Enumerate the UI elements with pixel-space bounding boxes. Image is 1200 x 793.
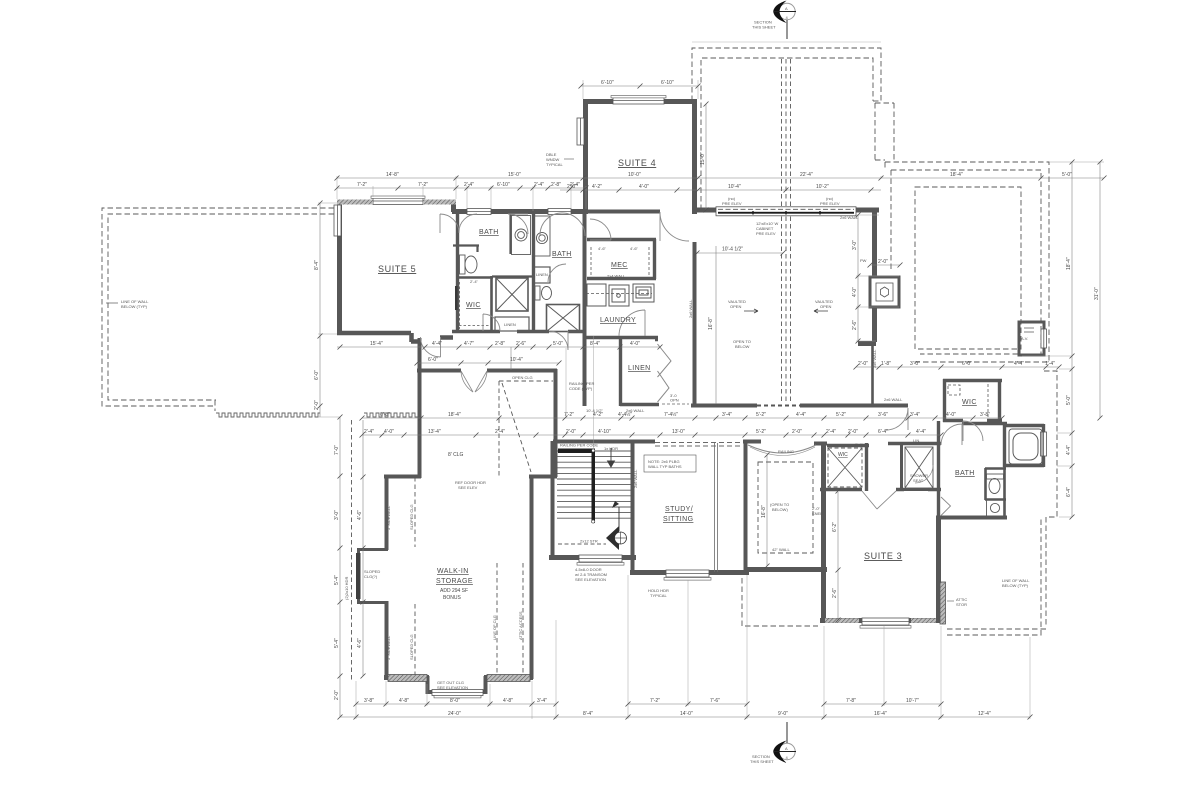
svg-text:SITTING: SITTING	[663, 516, 693, 523]
svg-text:24'-0": 24'-0"	[448, 711, 461, 717]
svg-text:2x6 WALL: 2x6 WALL	[688, 299, 693, 318]
svg-text:TYPICAL: TYPICAL	[650, 593, 667, 598]
svg-text:SUITE 5: SUITE 5	[378, 264, 416, 274]
svg-text:4'-4": 4'-4"	[916, 429, 926, 435]
svg-text:3'-0": 3'-0"	[334, 510, 340, 520]
svg-text:4'-8": 4'-8"	[399, 698, 409, 704]
svg-text:7'-0": 7'-0"	[334, 445, 340, 455]
svg-text:12'-4": 12'-4"	[978, 711, 991, 717]
svg-text:7'-4½": 7'-4½"	[664, 411, 678, 418]
svg-text:3'-8": 3'-8"	[364, 698, 374, 704]
svg-text:2'-0": 2'-0"	[858, 361, 868, 367]
svg-text:SEE ELEVATION: SEE ELEVATION	[575, 577, 606, 582]
svg-text:2'-4": 2'-4"	[464, 182, 474, 188]
svg-text:LINEN: LINEN	[628, 365, 651, 372]
svg-text:4'-6": 4'-6"	[598, 246, 607, 251]
svg-text:TYPICAL: TYPICAL	[546, 162, 563, 167]
svg-text:7'-2": 7'-2"	[357, 182, 367, 188]
svg-text:4'-10": 4'-10"	[598, 429, 611, 435]
svg-text:WIC: WIC	[466, 302, 481, 309]
svg-text:LAUNDRY: LAUNDRY	[600, 317, 636, 324]
svg-text:A.V.: A.V.	[1021, 336, 1028, 341]
svg-text:1'-8": 1'-8"	[881, 361, 891, 367]
svg-text:SEE ELEVATION: SEE ELEVATION	[437, 685, 468, 690]
svg-text:7'-8": 7'-8"	[846, 698, 856, 704]
svg-text:OPEN: OPEN	[730, 304, 741, 309]
svg-text:3'-8": 3'-8"	[980, 412, 990, 418]
svg-text:15'-4": 15'-4"	[370, 341, 383, 347]
svg-text:10'-7": 10'-7"	[906, 698, 919, 704]
svg-text:10'-4": 10'-4"	[728, 184, 741, 190]
svg-text:OPN: OPN	[670, 398, 679, 403]
svg-text:BATH: BATH	[955, 470, 975, 477]
svg-text:WALL TYP BATHS: WALL TYP BATHS	[648, 464, 682, 469]
svg-text:ATTIC ACCESS: ATTIC ACCESS	[518, 611, 523, 640]
svg-text:SLOPED CLG: SLOPED CLG	[409, 504, 414, 530]
svg-text:5' SIDEWALL: 5' SIDEWALL	[386, 635, 391, 660]
svg-text:5'-4": 5'-4"	[334, 638, 340, 648]
svg-text:RAILING: RAILING	[778, 449, 794, 454]
svg-text:15'-0": 15'-0"	[508, 172, 521, 178]
svg-text:BATH: BATH	[479, 229, 499, 236]
svg-text:4'-2": 4'-2"	[592, 184, 602, 190]
svg-text:4'-7": 4'-7"	[464, 341, 474, 347]
svg-text:5' SIDEWALL: 5' SIDEWALL	[386, 505, 391, 530]
svg-text:4'-0": 4'-0"	[384, 429, 394, 435]
svg-text:4'-8": 4'-8"	[503, 698, 513, 704]
svg-text:6'-8": 6'-8"	[380, 412, 390, 418]
svg-text:BATH: BATH	[552, 251, 572, 258]
svg-text:5'-2": 5'-2"	[756, 429, 766, 435]
svg-text:PRE ELEV: PRE ELEV	[756, 231, 776, 236]
svg-text:PRE ELEV: PRE ELEV	[820, 201, 840, 206]
svg-text:16'-4": 16'-4"	[874, 711, 887, 717]
svg-text:SEAT: SEAT	[913, 478, 924, 483]
svg-text:LIN.: LIN.	[913, 438, 920, 443]
svg-text:A: A	[785, 6, 788, 11]
svg-text:2x4 WALL: 2x4 WALL	[607, 274, 626, 279]
svg-text:3'-0": 3'-0"	[852, 240, 858, 250]
svg-text:7'-6": 7'-6"	[710, 698, 720, 704]
svg-text:LINE OF CLG: LINE OF CLG	[492, 615, 497, 640]
svg-text:SUITE 3: SUITE 3	[864, 551, 902, 561]
svg-text:16'-8": 16'-8"	[761, 505, 767, 518]
svg-text:5'-0": 5'-0"	[553, 341, 563, 347]
svg-text:BONUS: BONUS	[443, 595, 461, 601]
svg-text:2'-6": 2'-6"	[832, 588, 838, 598]
svg-text:5'-2": 5'-2"	[836, 412, 846, 418]
svg-text:PRE ELEV: PRE ELEV	[722, 201, 742, 206]
svg-text:2x6 WALL: 2x6 WALL	[872, 349, 877, 368]
svg-text:15'-0": 15'-0"	[700, 152, 706, 165]
svg-text:SEE ELEV: SEE ELEV	[458, 485, 478, 490]
svg-text:31'-0": 31'-0"	[1094, 287, 1100, 300]
svg-text:BELOW (TYP): BELOW (TYP)	[1002, 583, 1029, 588]
svg-text:BELOW: BELOW	[735, 344, 750, 349]
svg-text:14'-8": 14'-8"	[386, 172, 399, 178]
svg-text:4'-4": 4'-4"	[1066, 445, 1072, 455]
svg-text:THIS SHEET: THIS SHEET	[750, 759, 774, 764]
svg-text:6'-0": 6'-0"	[428, 357, 438, 363]
svg-text:2'-0": 2'-0"	[792, 429, 802, 435]
svg-text:2'-4": 2'-4"	[534, 182, 544, 188]
svg-text:9'-0": 9'-0"	[778, 711, 788, 717]
svg-text:3'-6": 3'-6"	[878, 412, 888, 418]
svg-text:4'-6": 4'-6"	[357, 638, 363, 648]
svg-text:8'-4": 8'-4"	[590, 341, 600, 347]
svg-text:2'-4": 2'-4"	[855, 442, 864, 447]
svg-text:BELOW): BELOW)	[772, 507, 788, 512]
svg-text:WALK-IN: WALK-IN	[437, 568, 469, 575]
svg-text:10'-4 1/2": 10'-4 1/2"	[586, 408, 603, 413]
svg-text:(2)2x10 HDR: (2)2x10 HDR	[344, 577, 349, 600]
svg-text:2'-0": 2'-0"	[566, 429, 576, 435]
svg-text:4'-0": 4'-0"	[630, 341, 640, 347]
svg-text:7'-2": 7'-2"	[650, 698, 660, 704]
svg-text:18'-4": 18'-4"	[448, 412, 461, 418]
svg-text:42" WALL: 42" WALL	[772, 547, 791, 552]
svg-text:10'-4": 10'-4"	[510, 357, 523, 363]
svg-text:2'-4": 2'-4"	[364, 429, 374, 435]
svg-text:PW: PW	[860, 258, 867, 263]
svg-text:2'-8": 2'-8"	[495, 341, 505, 347]
svg-text:8'-0": 8'-0"	[450, 698, 460, 704]
svg-text:4'-0": 4'-0"	[852, 287, 858, 297]
svg-text:2x6 WALL: 2x6 WALL	[884, 397, 903, 402]
svg-text:18'-4": 18'-4"	[950, 172, 963, 178]
svg-text:CLG(?): CLG(?)	[364, 574, 378, 579]
svg-text:10'-2": 10'-2"	[816, 184, 829, 190]
svg-text:4'-0": 4'-0"	[946, 412, 956, 418]
svg-text:SLOPED CLG: SLOPED CLG	[409, 634, 414, 660]
svg-text:13'-4": 13'-4"	[428, 429, 441, 435]
svg-text:2'-4": 2'-4"	[826, 429, 836, 435]
svg-text:8' CLG: 8' CLG	[448, 452, 464, 458]
svg-text:OPEN CLG: OPEN CLG	[512, 375, 533, 380]
svg-text:3'-4": 3'-4"	[537, 698, 547, 704]
svg-text:5'-2": 5'-2"	[756, 412, 766, 418]
svg-text:4'-4": 4'-4"	[432, 341, 442, 347]
svg-text:3'-4": 3'-4"	[910, 412, 920, 418]
svg-text:2'-0": 2'-0"	[567, 184, 577, 190]
svg-text:4'-4½": 4'-4½"	[618, 411, 632, 418]
svg-text:2'-0": 2'-0"	[878, 259, 888, 265]
svg-text:BELOW (TYP): BELOW (TYP)	[121, 304, 148, 309]
svg-text:1x HDR: 1x HDR	[604, 446, 618, 451]
svg-text:18'-4": 18'-4"	[1066, 257, 1072, 270]
svg-text:16'-8": 16'-8"	[708, 317, 714, 330]
svg-text:6'-0": 6'-0"	[962, 361, 972, 367]
svg-text:6'-2": 6'-2"	[832, 522, 838, 532]
svg-text:3'-0": 3'-0"	[910, 361, 920, 367]
svg-text:4'-6": 4'-6"	[357, 510, 363, 520]
svg-text:8'-4": 8'-4"	[314, 260, 320, 270]
svg-text:8'-4": 8'-4"	[583, 711, 593, 717]
svg-text:6'-0": 6'-0"	[314, 370, 320, 380]
svg-text:WIC: WIC	[962, 399, 977, 406]
svg-text:7'-2": 7'-2"	[564, 412, 574, 418]
svg-text:THIS SHEET: THIS SHEET	[752, 25, 776, 30]
svg-text:2'-0": 2'-0"	[334, 690, 340, 700]
svg-text:14'-0": 14'-0"	[680, 711, 693, 717]
svg-text:10'-4 1/2": 10'-4 1/2"	[722, 247, 743, 253]
svg-text:1'-4": 1'-4"	[1045, 361, 1055, 367]
svg-text:2x12 STR: 2x12 STR	[580, 539, 598, 544]
svg-text:10'-0": 10'-0"	[628, 172, 641, 178]
svg-text:ADD 294 SF: ADD 294 SF	[440, 588, 468, 594]
svg-text:OPEN: OPEN	[820, 304, 831, 309]
svg-text:13'-0": 13'-0"	[672, 429, 685, 435]
svg-text:6'-4": 6'-4"	[1066, 487, 1072, 497]
svg-text:RAILING PER CODE: RAILING PER CODE	[560, 443, 598, 448]
svg-text:22'-4": 22'-4"	[800, 172, 813, 178]
svg-text:STUDY/: STUDY/	[665, 506, 693, 513]
svg-text:6'-10": 6'-10"	[661, 80, 674, 86]
svg-text:STORAGE: STORAGE	[436, 578, 473, 585]
svg-text:2x6 WALL: 2x6 WALL	[633, 469, 638, 488]
svg-text:A: A	[785, 746, 788, 751]
svg-text:7'-2": 7'-2"	[418, 182, 428, 188]
svg-text:SUITE 4: SUITE 4	[618, 158, 656, 168]
svg-text:4'-6": 4'-6"	[630, 246, 639, 251]
svg-text:6'-10": 6'-10"	[601, 80, 614, 86]
svg-text:4'-0": 4'-0"	[639, 184, 649, 190]
svg-text:4'-4": 4'-4"	[796, 412, 806, 418]
svg-text:2'-0": 2'-0"	[848, 429, 858, 435]
svg-text:WIC: WIC	[838, 452, 848, 458]
svg-text:STOR: STOR	[956, 602, 967, 607]
svg-text:KNEE: KNEE	[812, 511, 823, 516]
svg-text:5'-0": 5'-0"	[1062, 172, 1072, 178]
svg-text:6'-4": 6'-4"	[878, 429, 888, 435]
svg-text:5'-0": 5'-0"	[1066, 395, 1072, 405]
svg-text:5'-4": 5'-4"	[334, 575, 340, 585]
svg-text:2'-4": 2'-4"	[470, 279, 479, 284]
svg-text:3'-4": 3'-4"	[722, 412, 732, 418]
svg-text:LINEN: LINEN	[504, 322, 516, 327]
svg-text:2'-0": 2'-0"	[314, 400, 320, 410]
svg-text:2'-6": 2'-6"	[516, 341, 526, 347]
svg-text:MEC: MEC	[611, 262, 628, 269]
svg-text:2'-4": 2'-4"	[495, 429, 505, 435]
svg-text:6'-10": 6'-10"	[497, 182, 510, 188]
svg-text:2'-8": 2'-8"	[551, 182, 561, 188]
svg-text:CODE (TYP): CODE (TYP)	[569, 386, 593, 391]
svg-text:2'-6": 2'-6"	[852, 320, 858, 330]
svg-text:2x6 WALL: 2x6 WALL	[840, 215, 859, 220]
svg-text:4'-4": 4'-4"	[1014, 361, 1024, 367]
svg-text:LINEN: LINEN	[536, 272, 548, 277]
